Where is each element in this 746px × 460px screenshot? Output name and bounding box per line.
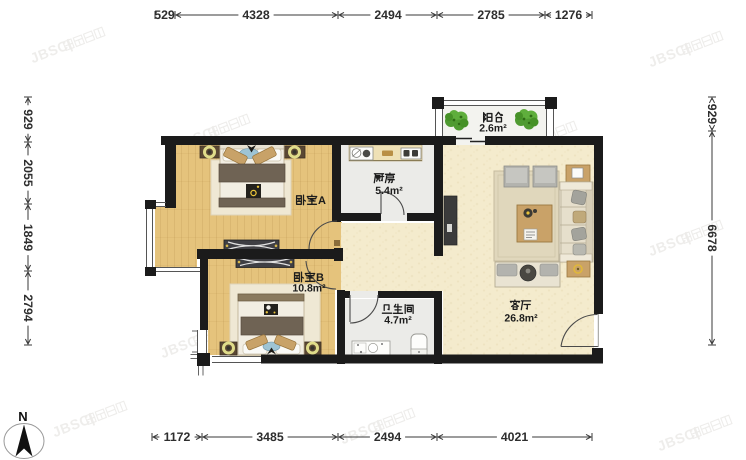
svg-text:N: N <box>18 409 27 424</box>
svg-text:4021: 4021 <box>501 430 529 444</box>
svg-text:4328: 4328 <box>242 8 270 22</box>
svg-text:10.8m²: 10.8m² <box>292 283 326 295</box>
svg-text:929: 929 <box>21 109 35 130</box>
svg-text:1849: 1849 <box>21 224 35 252</box>
svg-text:2785: 2785 <box>477 8 505 22</box>
svg-text:2.6m²: 2.6m² <box>479 123 507 135</box>
svg-text:1276: 1276 <box>555 8 583 22</box>
svg-text:929: 929 <box>705 104 719 125</box>
svg-text:26.8m²: 26.8m² <box>504 313 538 325</box>
svg-text:6678: 6678 <box>705 224 719 252</box>
svg-text:2794: 2794 <box>21 294 35 322</box>
svg-text:2494: 2494 <box>374 430 402 444</box>
svg-text:4.7m²: 4.7m² <box>384 315 412 327</box>
svg-text:1172: 1172 <box>164 430 191 444</box>
svg-text:5.4m²: 5.4m² <box>375 185 403 197</box>
svg-text:529: 529 <box>154 8 175 22</box>
svg-text:2055: 2055 <box>21 159 35 187</box>
svg-text:2494: 2494 <box>374 8 402 22</box>
svg-text:3485: 3485 <box>256 430 284 444</box>
svg-text:A: A <box>318 195 326 207</box>
